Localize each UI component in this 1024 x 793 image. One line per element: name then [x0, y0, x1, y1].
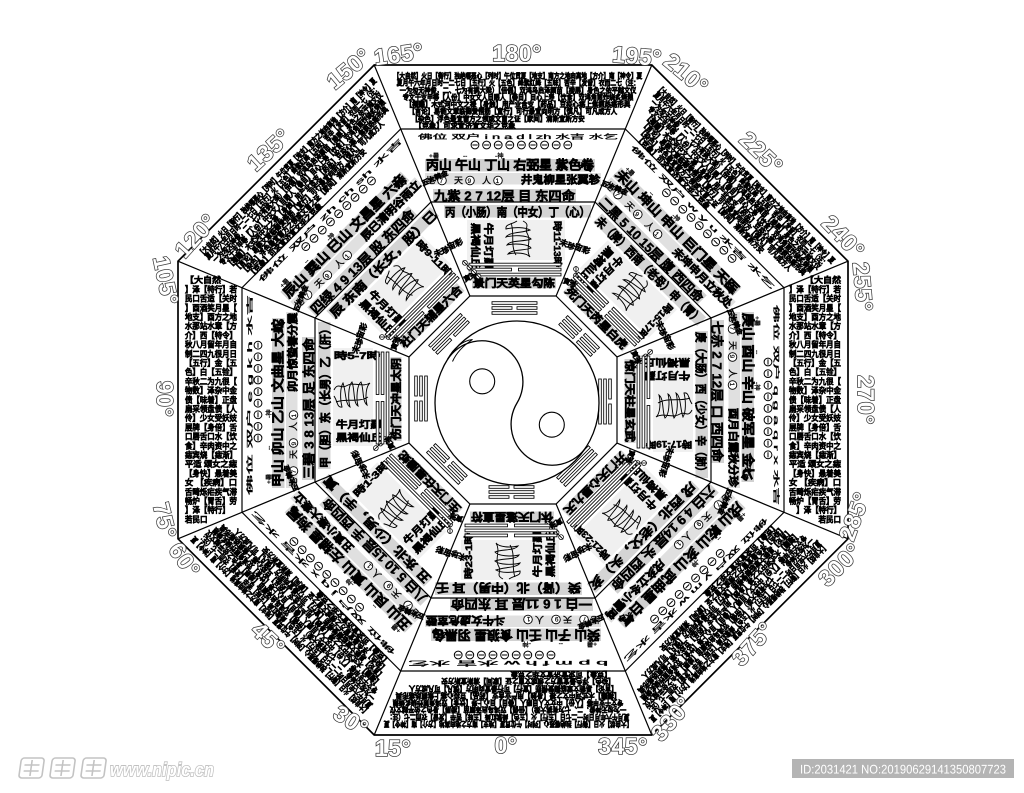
svg-text:180°: 180° [492, 40, 542, 66]
svg-text:斗牛女虚危室壁: 斗牛女虚危室壁 [426, 614, 505, 627]
svg-text:【克象】可求宜济宜文华之克象: 【克象】可求宜济宜文华之克象 [415, 122, 516, 131]
svg-text:9: 9 [555, 615, 559, 622]
svg-text:丙（小肠）南（中女）丁（心）: 丙（小肠）南（中女）丁（心） [445, 206, 590, 220]
svg-text:卯月惊蛰春分震: 卯月惊蛰春分震 [287, 312, 300, 392]
svg-text:9: 9 [291, 442, 298, 446]
svg-text:惊门天柱星玄武: 惊门天柱星玄武 [623, 360, 636, 442]
svg-text:庚山 酉山 辛山 破军星 金匕: 庚山 酉山 辛山 破军星 金匕 [741, 313, 756, 481]
svg-text:ID:2031421 NO:2019062914135080: ID:2031421 NO:20190629141350807723 [800, 763, 1006, 777]
svg-text:甲（胆）东（长男）乙（肝）: 甲（胆）东（长男）乙（肝） [319, 323, 333, 468]
svg-text:黑褐仙丘: 黑褐仙丘 [469, 223, 481, 269]
svg-text:天: 天 [563, 615, 572, 625]
svg-text:天: 天 [728, 341, 738, 350]
svg-text:休门天蓬星直符: 休门天蓬星直符 [471, 510, 554, 523]
svg-text:牛月圢羄: 牛月圢羄 [644, 369, 690, 381]
svg-text:1: 1 [728, 383, 735, 387]
svg-text:人: 人 [728, 369, 738, 378]
svg-text:www.nipic.cn: www.nipic.cn [110, 760, 214, 781]
svg-text:牛月圢羄: 牛月圢羄 [532, 531, 544, 577]
svg-text:人: 人 [289, 422, 299, 431]
svg-text:甲山 卯山 乙山 文曲星 大蛇: 甲山 卯山 乙山 文曲星 大蛇 [271, 319, 286, 487]
svg-text:佛位 双户 e g k h 水吉: 佛位 双户 e g k h 水吉 [246, 294, 254, 495]
svg-text:黑褐仙丘: 黑褐仙丘 [545, 531, 557, 577]
svg-text:人: 人 [482, 176, 491, 186]
svg-text:人: 人 [535, 615, 544, 625]
svg-text:b p m f h w 水吉 水乞: b p m f h w 水吉 水乞 [407, 659, 608, 667]
svg-text:黑褐仙丘: 黑褐仙丘 [336, 432, 382, 444]
svg-text:黑褐仙丘: 黑褐仙丘 [644, 356, 690, 368]
svg-text:【克象】可求宜济宜文华之克象: 【克象】可求宜济宜文华之克象 [510, 669, 611, 678]
svg-text:景门天英星勾陈: 景门天英星勾陈 [473, 277, 555, 290]
svg-text:七赤 2 7 12层 口 西四命: 七赤 2 7 12层 口 西四命 [710, 321, 725, 463]
svg-text:庚（大肠）西（少女）辛（肺）: 庚（大肠）西（少女）辛（肺） [694, 332, 708, 477]
svg-text:9: 9 [468, 178, 472, 185]
svg-text:佛位 双户 i n a d l zh 水吉 水乞: 佛位 双户 i n a d l zh 水吉 水乞 [418, 133, 619, 141]
svg-text:1: 1 [496, 178, 500, 185]
svg-text:1: 1 [527, 615, 531, 622]
svg-text:1: 1 [291, 414, 298, 418]
svg-text:90°: 90° [152, 381, 178, 417]
svg-text:酉月白露秋分珍: 酉月白露秋分珍 [727, 408, 740, 488]
svg-text:345°: 345° [598, 733, 648, 759]
svg-text:9: 9 [728, 355, 735, 359]
svg-text:伤门天冲星太阴: 伤门天冲星太阴 [390, 358, 403, 441]
svg-text:255°: 255° [848, 261, 878, 313]
svg-text:丙山 午山 丁山 右弼星 紫色卷: 丙山 午山 丁山 右弼星 紫色卷 [426, 158, 595, 173]
svg-text:癸（肾）北（中男）耳 壬: 癸（肾）北（中男）耳 壬 [436, 581, 582, 595]
svg-text:癸山 子山 壬山 食狼星 羽黑色: 癸山 子山 壬山 食狼星 羽黑色 [432, 628, 601, 643]
svg-text:九紫 2 7 12层 目 东四命: 九紫 2 7 12层 目 东四命 [433, 189, 576, 204]
svg-text:井鬼柳星张翼轸: 井鬼柳星张翼轸 [521, 174, 601, 187]
svg-text:天: 天 [454, 176, 463, 186]
svg-text:三碧 3 8 13层 足 东四命: 三碧 3 8 13层 足 东四命 [302, 337, 317, 479]
svg-text:若民口: 若民口 [184, 514, 207, 524]
svg-text:牛月圢羄: 牛月圢羄 [336, 419, 382, 431]
svg-text:牛月圢羄: 牛月圢羄 [482, 223, 494, 269]
svg-text:佛位 双户 q g a q r x 水吉: 佛位 双户 q g a q r x 水吉 [772, 305, 780, 506]
svg-text:195°: 195° [611, 41, 663, 71]
svg-text:一白 1 6 11层 耳 东四命: 一白 1 6 11层 耳 东四命 [450, 597, 592, 612]
svg-text:0°: 0° [495, 732, 518, 758]
svg-text:15°: 15° [375, 735, 411, 761]
svg-text:天: 天 [289, 450, 299, 459]
svg-text:270°: 270° [853, 375, 879, 425]
